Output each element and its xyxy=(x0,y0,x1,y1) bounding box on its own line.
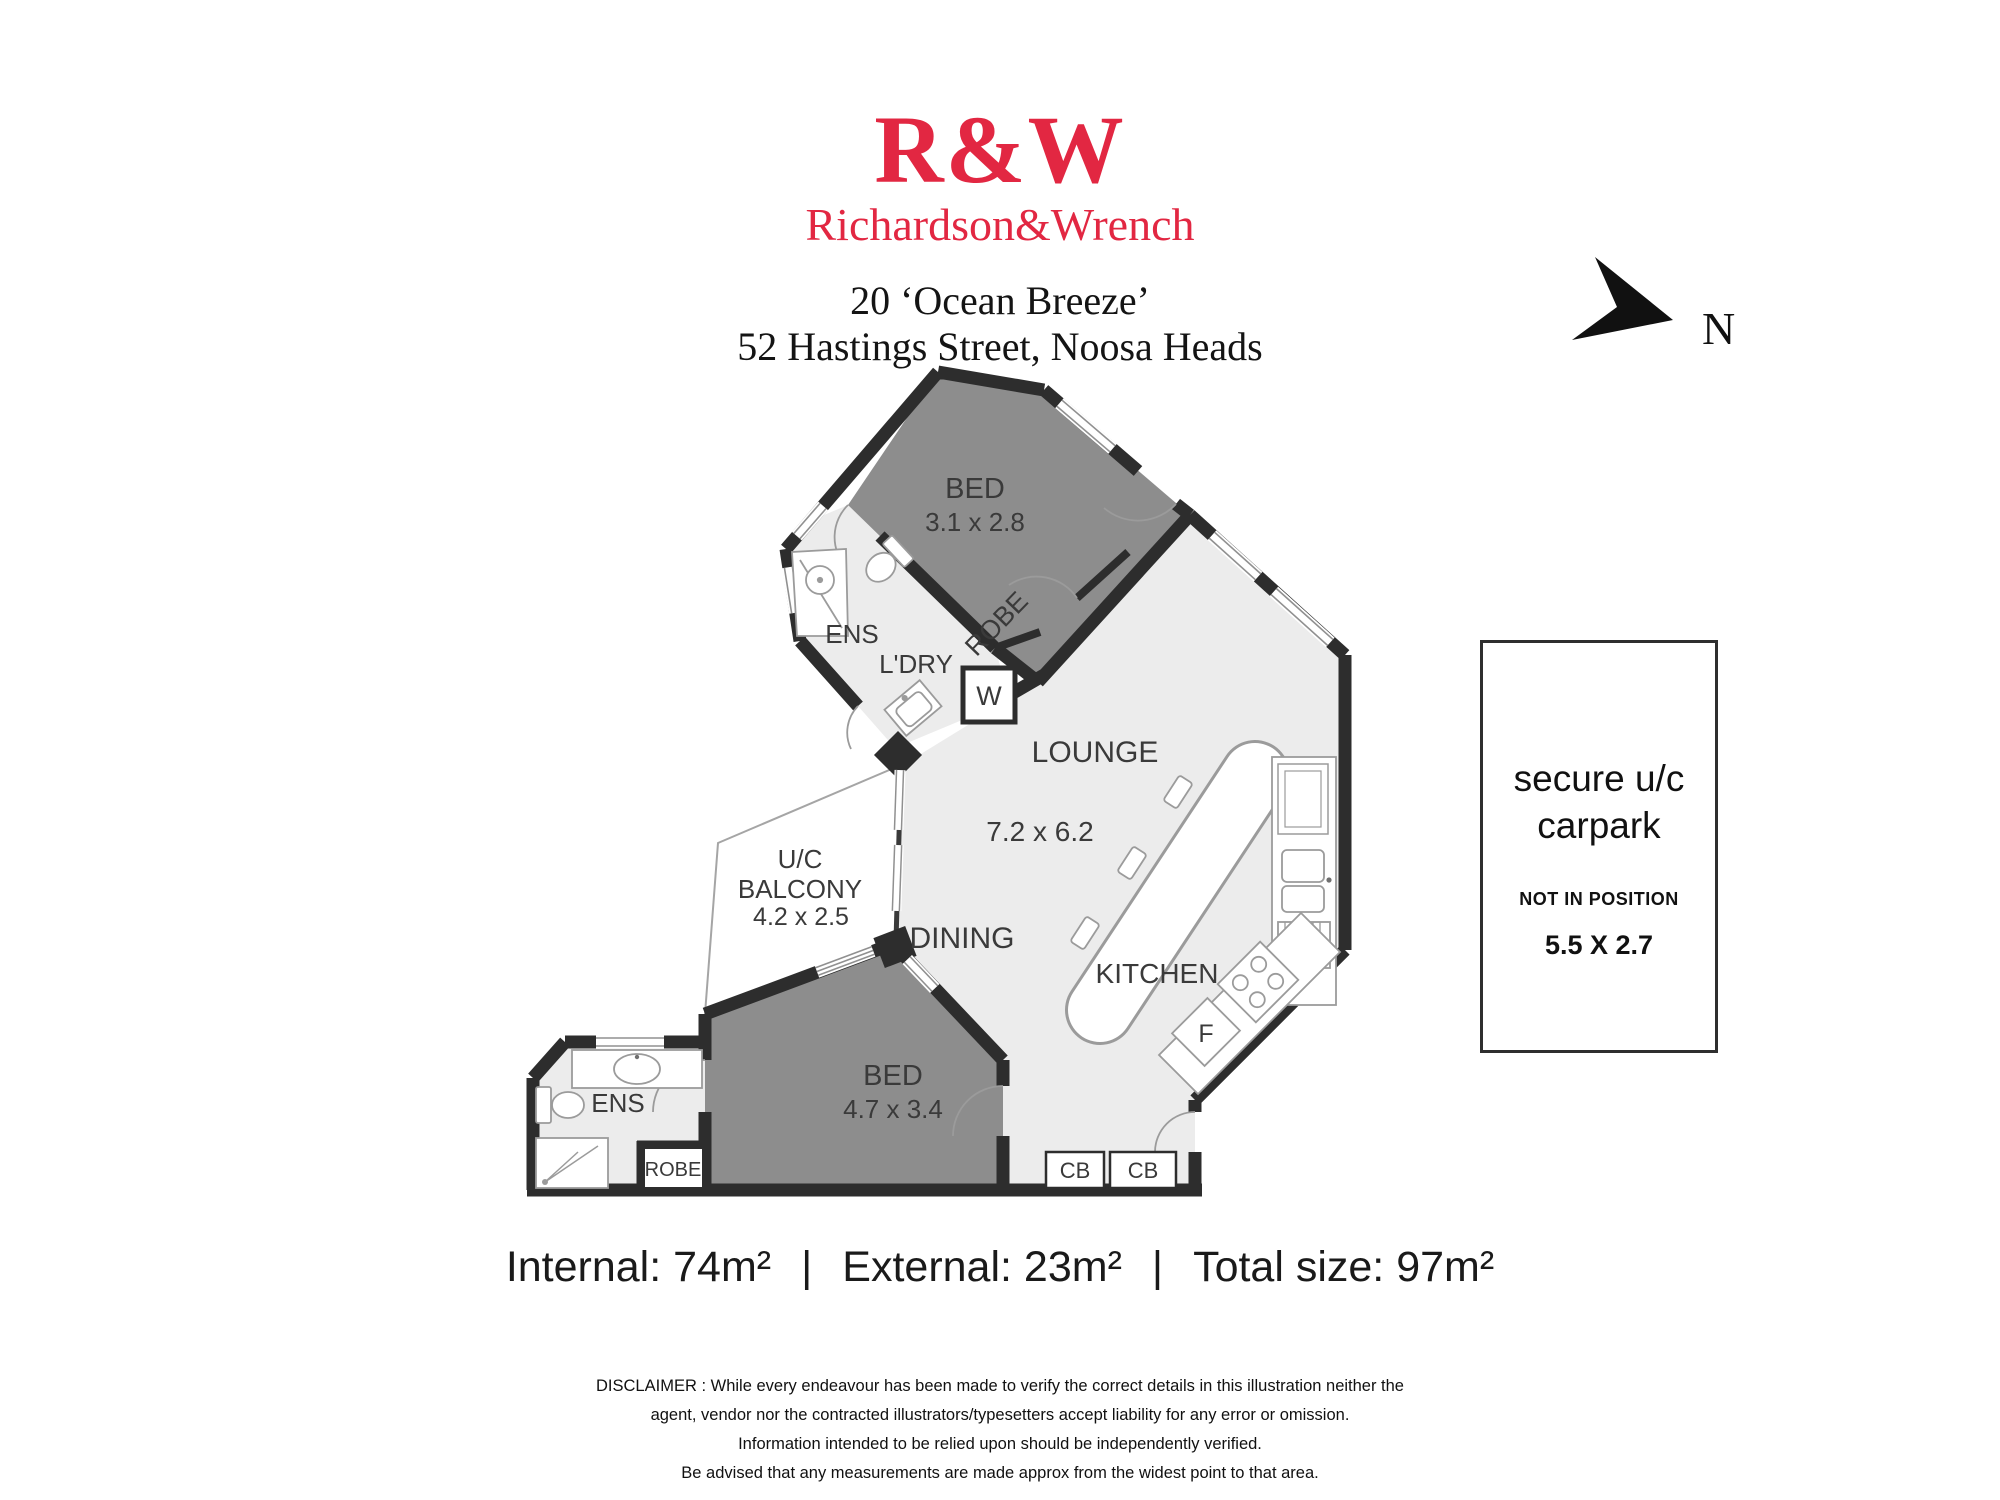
kitchen-sink-bowl xyxy=(1282,850,1324,882)
shower-icon xyxy=(536,1138,608,1188)
robe2-label: ROBE xyxy=(645,1159,702,1181)
bed2-dims: 4.7 x 3.4 xyxy=(843,1094,943,1124)
total-size: Total size: 97m² xyxy=(1193,1243,1494,1292)
dining-label: DINING xyxy=(910,922,1015,955)
cupboard2-label: CB xyxy=(1128,1158,1159,1183)
window xyxy=(892,770,905,830)
carpark-line2: carpark xyxy=(1483,802,1715,849)
disclaimer: DISCLAIMER : While every endeavour has b… xyxy=(0,1372,2000,1488)
total-internal: Internal: 74m² xyxy=(506,1243,771,1292)
laundry-label: L'DRY xyxy=(879,649,953,679)
disclaimer-line: Be advised that any measurements are mad… xyxy=(0,1459,2000,1488)
disclaimer-line: Information intended to be relied upon s… xyxy=(0,1430,2000,1459)
window xyxy=(596,1036,664,1049)
compass-label: N xyxy=(1702,303,1735,354)
kitchen-label: KITCHEN xyxy=(1096,958,1219,989)
ens2-label: ENS xyxy=(591,1088,644,1118)
disclaimer-line: agent, vendor nor the contracted illustr… xyxy=(0,1401,2000,1430)
balcony-line1: U/C xyxy=(778,844,823,874)
compass: N xyxy=(1572,257,1735,354)
lounge-dims: 7.2 x 6.2 xyxy=(986,816,1093,847)
ens1-label: ENS xyxy=(825,619,878,649)
fridge-label: F xyxy=(1198,1020,1213,1048)
carpark-box: secure u/c carpark NOT IN POSITION 5.5 X… xyxy=(1480,640,1718,1053)
cupboard1-label: CB xyxy=(1060,1158,1091,1183)
tap-icon xyxy=(1326,877,1331,882)
balcony-dims: 4.2 x 2.5 xyxy=(753,903,849,931)
window xyxy=(890,845,903,911)
totals-separator: | xyxy=(801,1243,812,1292)
balcony-line2: BALCONY xyxy=(738,874,862,904)
bed1-dims: 3.1 x 2.8 xyxy=(925,507,1025,537)
total-external: External: 23m² xyxy=(842,1243,1122,1292)
carpark-note: NOT IN POSITION xyxy=(1483,889,1715,910)
north-arrow-icon xyxy=(1572,257,1673,340)
bed1-label: BED xyxy=(945,473,1005,505)
lounge-label: LOUNGE xyxy=(1032,736,1159,769)
bed2-label: BED xyxy=(863,1060,923,1092)
kitchen-sink-bowl xyxy=(1282,886,1324,912)
tap-icon xyxy=(635,1055,639,1059)
totals-separator: | xyxy=(1152,1243,1163,1292)
disclaimer-line: DISCLAIMER : While every endeavour has b… xyxy=(0,1372,2000,1401)
kitchen-cabinet-inner xyxy=(1285,771,1321,827)
carpark-line1: secure u/c xyxy=(1483,755,1715,802)
area-totals: Internal: 74m² | External: 23m² | Total … xyxy=(0,1243,2000,1292)
washer-label: W xyxy=(976,681,1002,711)
carpark-dims: 5.5 X 2.7 xyxy=(1483,930,1715,961)
